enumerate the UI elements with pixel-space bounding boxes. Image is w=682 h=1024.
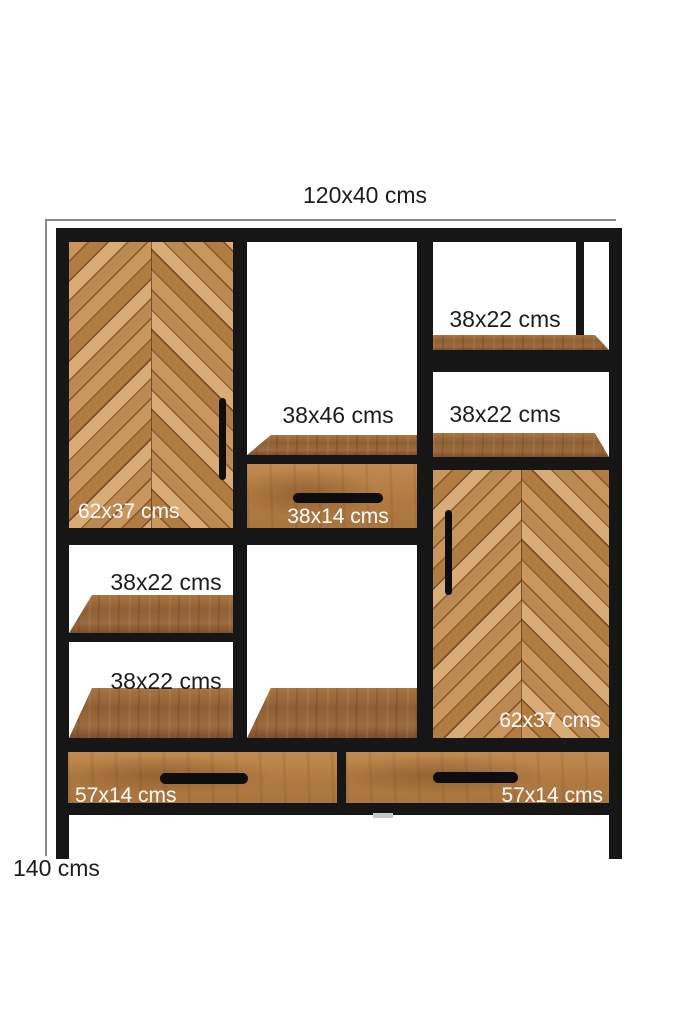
center-drawer-handle (293, 493, 383, 503)
label-left-shelf-lower: 38x22 cms (110, 670, 221, 693)
right-door-seam (521, 470, 522, 738)
right-door (433, 470, 609, 738)
back-post (576, 242, 584, 335)
dimension-label-height: 140 cms (13, 857, 100, 880)
label-bottom-drawer-right: 57x14 cms (501, 785, 603, 806)
left-shelf-upper (69, 595, 233, 633)
right-shelf-middle-rail (433, 457, 609, 470)
center-shelf (247, 435, 417, 455)
right-door-handle (445, 510, 452, 595)
label-bottom-drawer-left: 57x14 cms (75, 785, 177, 806)
divider-left-center (233, 228, 247, 752)
label-left-door: 62x37 cms (78, 501, 180, 522)
left-door-herringbone-right (151, 242, 233, 528)
label-right-door: 62x37 cms (499, 710, 601, 731)
left-leg (56, 815, 69, 859)
left-door-seam (151, 242, 152, 528)
back-leg (373, 813, 393, 818)
left-door-handle (219, 398, 226, 480)
right-door-herringbone-right (521, 470, 609, 738)
dimension-line-width (45, 219, 616, 221)
furniture-dimension-diagram: 120x40 cms 140 cms 38x22 cms 38x46 cms 3… (0, 0, 682, 1024)
right-shelf-middle (433, 433, 609, 457)
left-door (69, 242, 233, 528)
bottom-drawer-divider (337, 752, 346, 803)
frame-right-rail (609, 228, 622, 815)
frame-left-rail (56, 228, 69, 815)
mid-horizontal-rail (69, 528, 417, 545)
bottom-drawer-right-handle (433, 772, 518, 783)
label-center-open: 38x46 cms (282, 404, 393, 427)
center-shelf-lower (247, 688, 417, 738)
bottom-drawer-left-handle (160, 773, 248, 784)
bottom-shelf-rail (69, 738, 609, 752)
left-shelf-lower (69, 688, 233, 738)
label-center-drawer: 38x14 cms (287, 506, 389, 527)
label-left-shelf-upper: 38x22 cms (110, 571, 221, 594)
left-door-herringbone-left (69, 242, 151, 528)
divider-center-right (417, 228, 433, 752)
dimension-line-height (45, 219, 47, 856)
label-right-shelf-top: 38x22 cms (449, 308, 560, 331)
center-shelf-rail (247, 455, 417, 464)
right-leg (609, 815, 622, 859)
frame-top-rail (56, 228, 622, 242)
right-shelf-top-rail (433, 350, 609, 372)
label-right-shelf-middle: 38x22 cms (449, 403, 560, 426)
dimension-label-width-depth: 120x40 cms (303, 184, 427, 207)
left-shelf-upper-rail (69, 633, 233, 642)
right-shelf-top (433, 335, 609, 350)
